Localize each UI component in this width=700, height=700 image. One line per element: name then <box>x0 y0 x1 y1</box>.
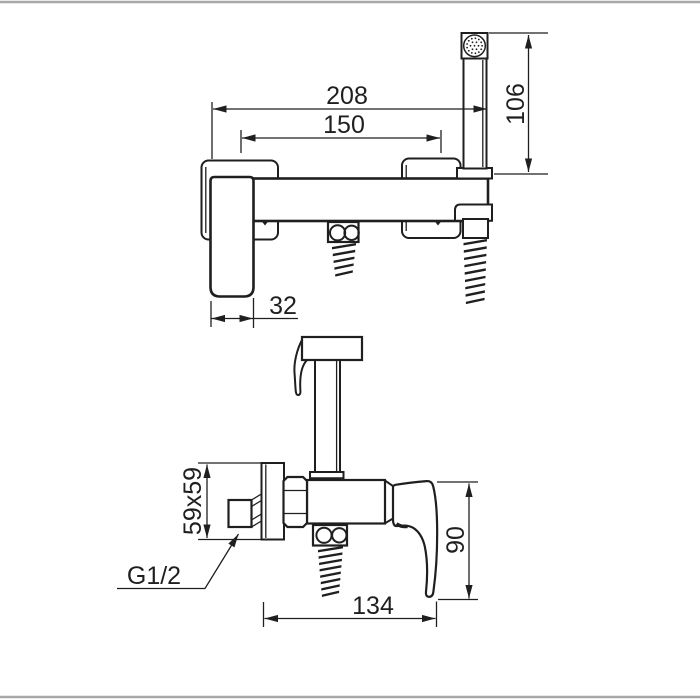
dim-208-label: 208 <box>326 82 368 110</box>
dim-134-label: 134 <box>352 592 394 620</box>
dim-90-label: 90 <box>442 526 470 554</box>
dim-150: 150 <box>241 111 441 153</box>
dim-106: 106 <box>489 33 548 174</box>
mixer-body <box>307 480 385 524</box>
hose-nipple-right <box>463 219 488 238</box>
dim-208-arrow-left <box>213 105 227 112</box>
dim-90-arrow-bottom <box>465 585 472 599</box>
dim-90: 90 <box>437 482 478 600</box>
hose-coil-side <box>318 546 343 597</box>
dim-32-arrow-left <box>212 315 226 322</box>
front-view: 208 150 106 32 <box>202 33 549 328</box>
mixer-bar <box>232 179 488 222</box>
square-flange-side <box>262 463 285 540</box>
side-view: 59x59 G1/2 90 134 <box>117 337 478 627</box>
dim-134-arrow-left <box>265 615 279 622</box>
dim-150-arrow-right <box>427 134 441 141</box>
technical-drawing-page: 208 150 106 32 <box>0 0 700 700</box>
lever-handle <box>211 177 254 297</box>
dim-134: 134 <box>264 592 437 627</box>
dim-106-arrow-bottom <box>525 159 532 173</box>
drawing-canvas: 208 150 106 32 <box>0 0 700 700</box>
sprayer-head <box>302 337 362 360</box>
dim-59-label: 59x59 <box>179 467 207 535</box>
dim-106-arrow-top <box>525 35 532 49</box>
dim-32-label: 32 <box>269 292 297 320</box>
union-thread-coil <box>332 243 356 277</box>
handshower-holder <box>457 168 492 179</box>
dim-32-arrow-right <box>240 315 254 322</box>
label-g12: G1/2 <box>117 532 242 590</box>
dim-90-arrow-top <box>465 484 472 498</box>
shower-hose-coil <box>464 239 488 304</box>
g12-text: G1/2 <box>127 562 181 590</box>
body-taper <box>385 481 393 524</box>
dim-150-label: 150 <box>323 111 365 139</box>
dim-134-arrow-right <box>422 615 436 622</box>
hex-nut <box>284 477 308 527</box>
mixer-handle <box>393 481 437 597</box>
g12-square-end <box>229 500 252 527</box>
dim-150-arrow-left <box>242 134 256 141</box>
dim-106-label: 106 <box>502 83 530 125</box>
